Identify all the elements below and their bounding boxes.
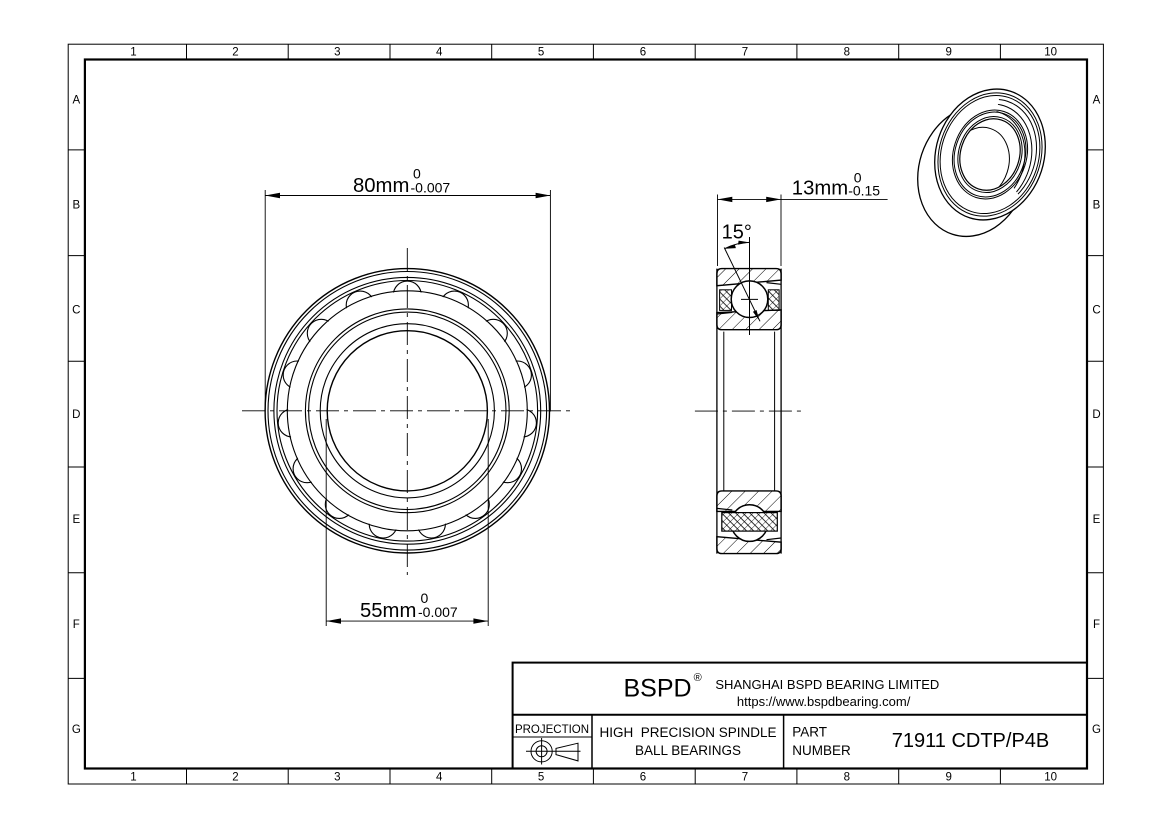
svg-text:9: 9 — [945, 772, 951, 784]
svg-text:HIGH PRECISION SPINDLE: HIGH PRECISION SPINDLE — [599, 725, 776, 740]
svg-text:PART: PART — [792, 725, 827, 740]
svg-text:6: 6 — [640, 47, 646, 59]
svg-text:https://www.bspdbearing.com/: https://www.bspdbearing.com/ — [737, 694, 911, 709]
svg-text:B: B — [72, 199, 80, 211]
svg-text:8: 8 — [844, 47, 850, 59]
svg-text:G: G — [72, 724, 81, 736]
svg-text:G: G — [1092, 724, 1101, 736]
svg-text:D: D — [1092, 409, 1100, 421]
svg-text:5: 5 — [538, 772, 544, 784]
svg-text:4: 4 — [436, 772, 443, 784]
svg-text:A: A — [1093, 95, 1101, 107]
svg-text:C: C — [1092, 304, 1100, 316]
svg-text:6: 6 — [640, 772, 646, 784]
svg-text:BSPD: BSPD — [624, 675, 692, 703]
svg-text:2: 2 — [232, 47, 238, 59]
svg-text:E: E — [72, 514, 80, 526]
svg-text:A: A — [72, 95, 80, 107]
svg-text:1: 1 — [130, 772, 136, 784]
svg-text:8: 8 — [844, 772, 850, 784]
svg-text:1: 1 — [130, 47, 136, 59]
svg-text:3: 3 — [334, 772, 340, 784]
svg-text:BALL BEARINGS: BALL BEARINGS — [635, 743, 741, 758]
svg-text:10: 10 — [1044, 772, 1057, 784]
svg-text:F: F — [73, 619, 80, 631]
svg-text:NUMBER: NUMBER — [792, 743, 851, 758]
svg-text:10: 10 — [1044, 47, 1057, 59]
svg-text:7: 7 — [742, 47, 748, 59]
svg-text:B: B — [1093, 199, 1101, 211]
svg-text:-0.007: -0.007 — [418, 604, 458, 620]
svg-text:71911 CDTP/P4B: 71911 CDTP/P4B — [892, 730, 1050, 752]
svg-text:SHANGHAI BSPD BEARING LIMITED: SHANGHAI BSPD BEARING LIMITED — [715, 677, 939, 692]
svg-text:55mm: 55mm — [360, 600, 416, 622]
svg-text:9: 9 — [945, 47, 951, 59]
svg-text:7: 7 — [742, 772, 748, 784]
svg-text:5: 5 — [538, 47, 544, 59]
svg-text:-0.007: -0.007 — [411, 180, 451, 196]
svg-text:-0.15: -0.15 — [848, 182, 880, 198]
svg-text:4: 4 — [436, 47, 443, 59]
svg-text:13mm: 13mm — [792, 178, 848, 200]
svg-text:E: E — [1093, 514, 1101, 526]
svg-text:®: ® — [694, 672, 702, 684]
svg-text:C: C — [72, 304, 80, 316]
svg-text:D: D — [72, 409, 80, 421]
svg-text:F: F — [1093, 619, 1100, 631]
svg-text:15°: 15° — [722, 222, 752, 244]
svg-text:3: 3 — [334, 47, 340, 59]
svg-text:80mm: 80mm — [353, 175, 409, 197]
svg-text:PROJECTION: PROJECTION — [515, 724, 589, 736]
svg-text:2: 2 — [232, 772, 238, 784]
